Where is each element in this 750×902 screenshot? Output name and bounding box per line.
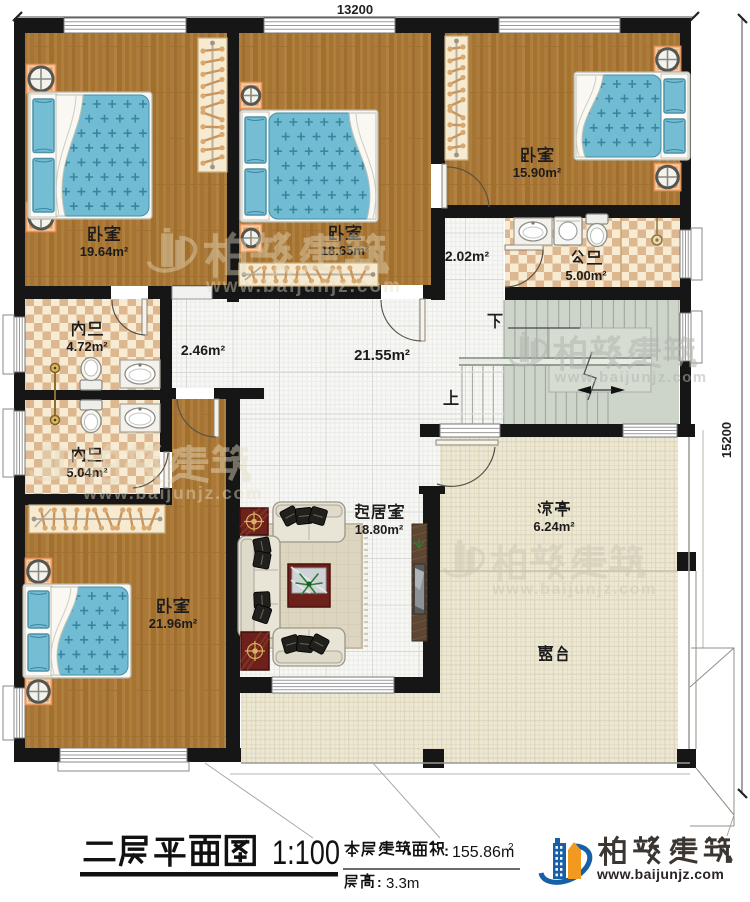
svg-text:2: 2: [508, 842, 514, 853]
svg-text:21.55m²: 21.55m²: [354, 347, 410, 364]
svg-text:6.24m²: 6.24m²: [533, 519, 575, 534]
svg-text:21.96m²: 21.96m²: [149, 616, 198, 631]
svg-text:www.baijunjz.com: www.baijunjz.com: [554, 370, 708, 386]
svg-text:5.00m²: 5.00m²: [565, 268, 607, 283]
svg-text:2.46m²: 2.46m²: [181, 342, 226, 358]
svg-text:2.02m²: 2.02m²: [445, 248, 490, 264]
svg-text:19.64m²: 19.64m²: [80, 244, 129, 259]
svg-text::: :: [377, 874, 382, 890]
svg-text:18.80m²: 18.80m²: [355, 522, 404, 537]
svg-text:15.90m²: 15.90m²: [513, 165, 562, 180]
svg-text:www.baijunjz.com: www.baijunjz.com: [491, 581, 657, 598]
svg-text:1:100: 1:100: [272, 834, 340, 872]
svg-text:15200: 15200: [719, 422, 734, 458]
svg-text:3.3m: 3.3m: [386, 875, 419, 892]
svg-text::: :: [444, 843, 449, 860]
svg-text:13200: 13200: [337, 2, 373, 17]
svg-text:www.baijunjz.com: www.baijunjz.com: [596, 866, 724, 882]
svg-text:4.72m²: 4.72m²: [66, 339, 108, 354]
svg-text:155.86m: 155.86m: [452, 844, 514, 861]
svg-text:www.baijunjz.com: www.baijunjz.com: [82, 483, 263, 503]
svg-text:www.baijunjz.com: www.baijunjz.com: [205, 276, 402, 297]
